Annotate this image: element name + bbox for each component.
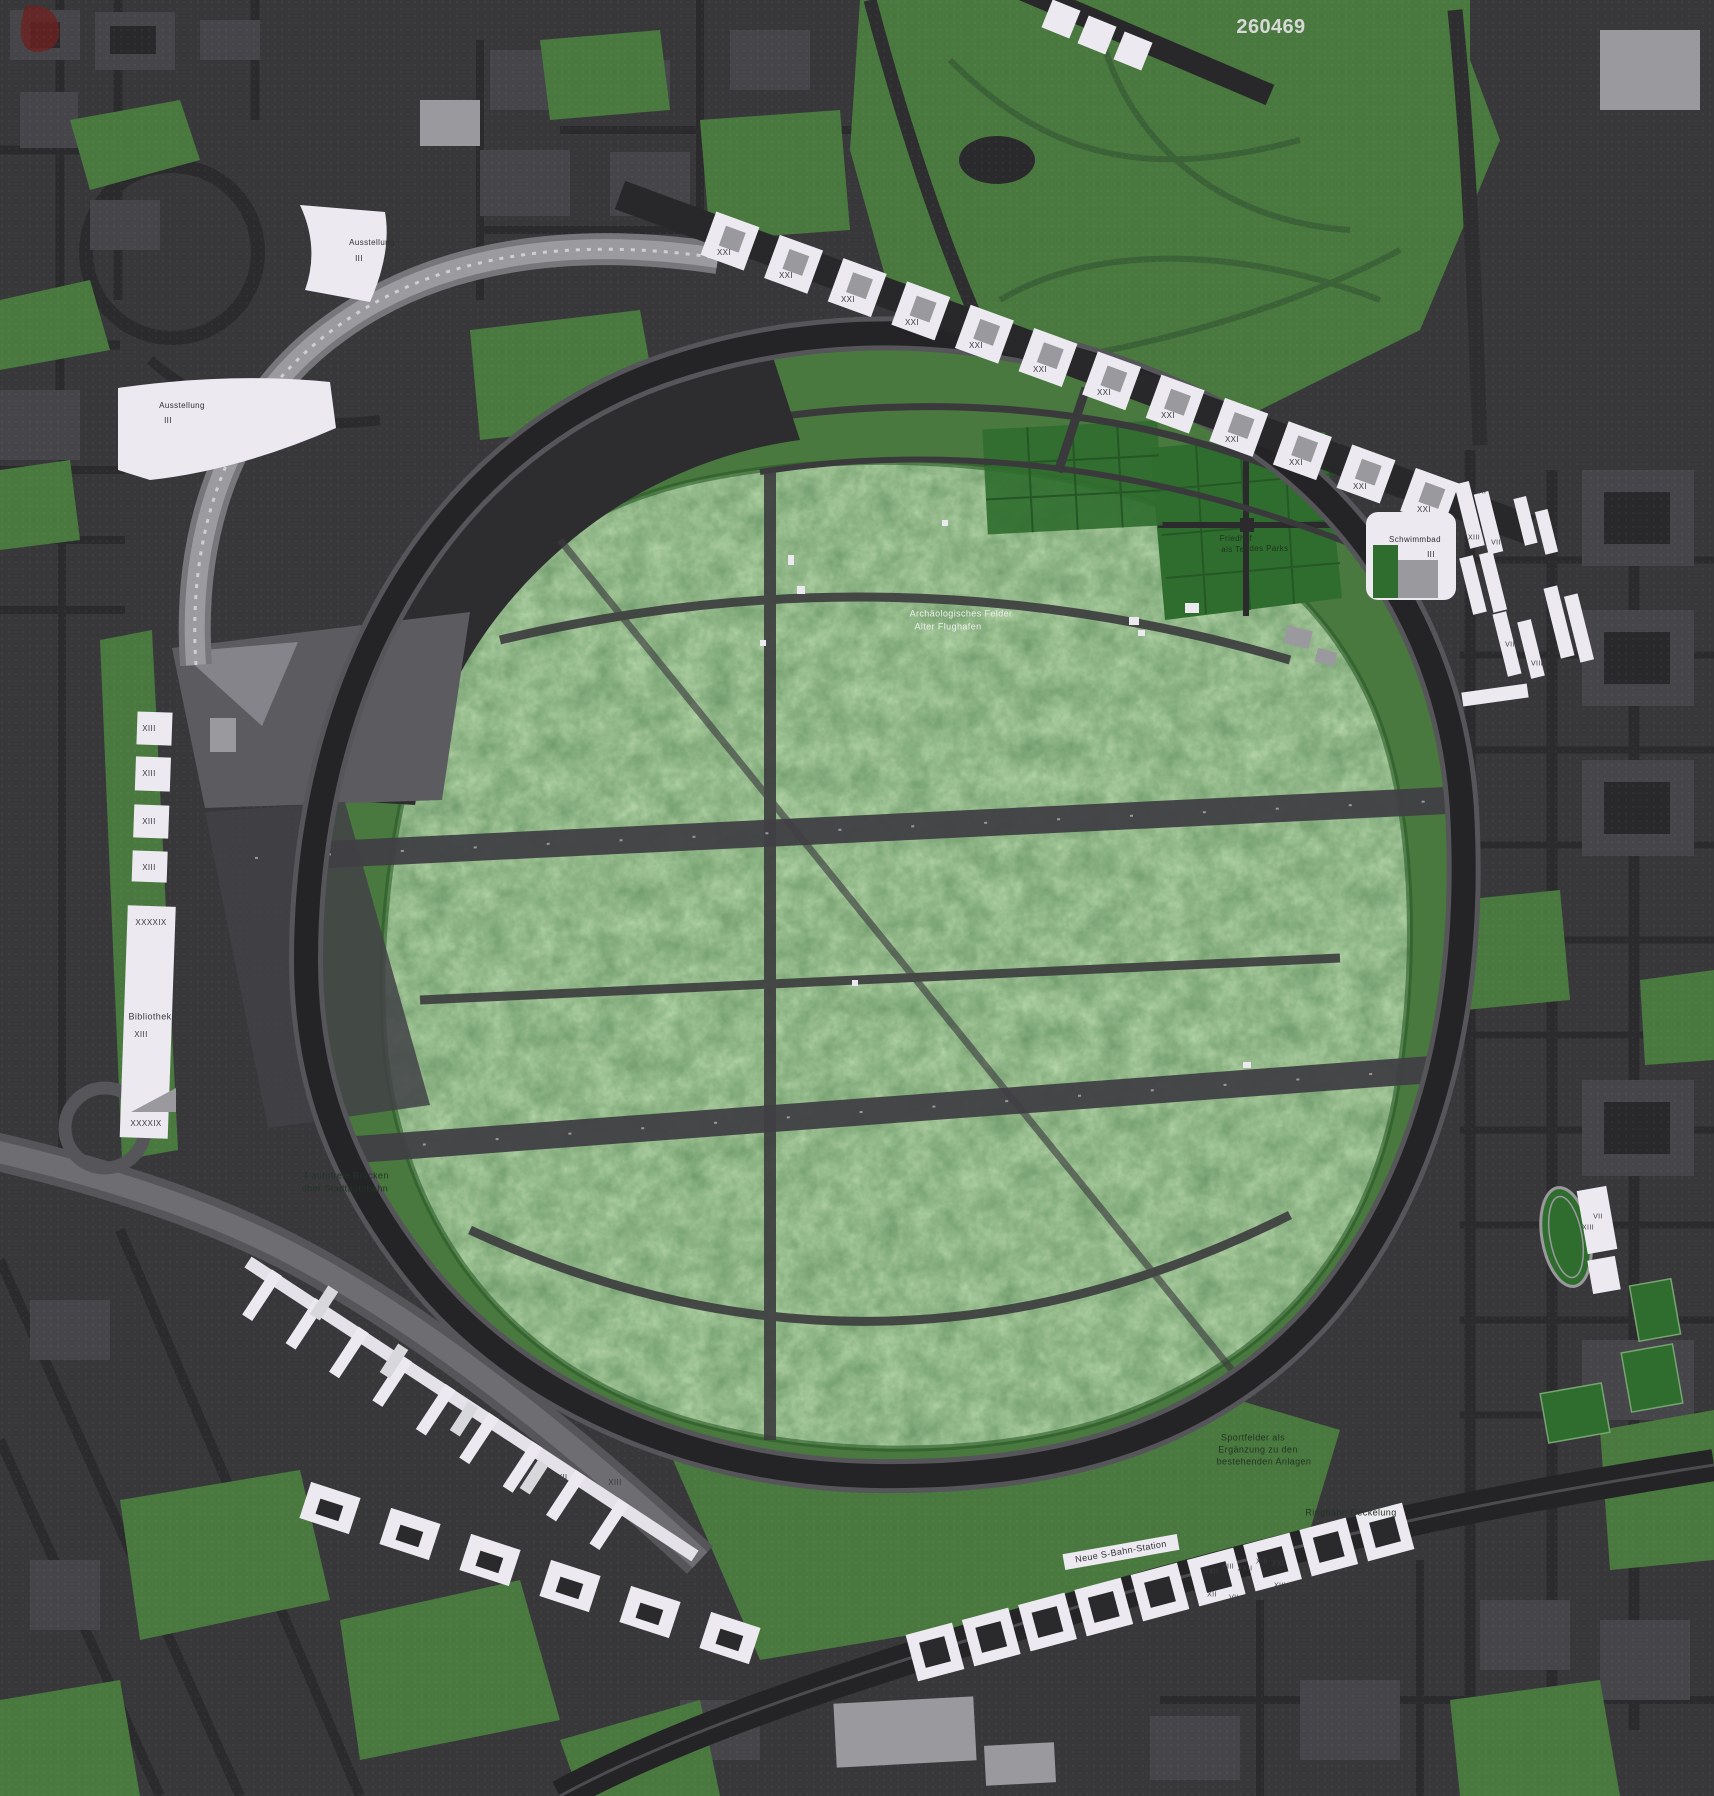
xiii-block [135, 756, 171, 791]
schwimmbad-area [1366, 512, 1456, 600]
map-canvas [0, 0, 1714, 1796]
xiii-block [132, 850, 168, 882]
xiii-block [133, 804, 169, 838]
xiii-block [136, 711, 172, 745]
masterplan-map: 260469AusstellungIIIAusstellungIIIXIIIXI… [0, 0, 1714, 1796]
